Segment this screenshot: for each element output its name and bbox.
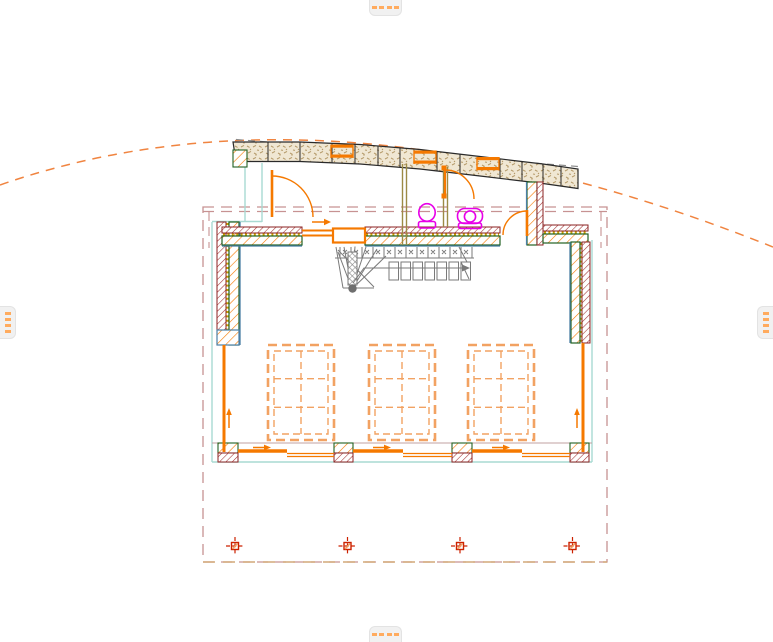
- handle-dash: [5, 324, 11, 328]
- drawing-canvas[interactable]: [0, 0, 773, 642]
- handle-dash: [379, 6, 384, 9]
- marquee-boundary: [203, 207, 607, 562]
- handle-dash: [387, 6, 392, 9]
- floor-opening-2: [369, 345, 435, 440]
- handle-dash: [372, 6, 377, 9]
- application-viewport: [0, 0, 773, 642]
- grid-marker-1: [226, 537, 244, 555]
- handle-dash: [379, 633, 384, 636]
- grid-marker-4: [564, 537, 582, 555]
- scroll-handle-right[interactable]: [757, 306, 773, 339]
- window-direction-arrows: [226, 408, 580, 450]
- handle-dash: [763, 318, 769, 322]
- staircase: [335, 247, 474, 293]
- floor-opening-1: [268, 345, 334, 440]
- scroll-handle-top[interactable]: [369, 0, 402, 16]
- handle-dash: [763, 312, 769, 316]
- handle-dash: [5, 312, 11, 316]
- interior-walls: [222, 164, 500, 246]
- floor-openings: [268, 345, 534, 440]
- handle-dash: [394, 633, 399, 636]
- handle-dash: [763, 324, 769, 328]
- grid-marker-2: [339, 537, 357, 555]
- handle-dash: [5, 318, 11, 322]
- grid-markers: [226, 537, 582, 555]
- handle-dash: [5, 330, 11, 334]
- grid-marker-3: [451, 537, 469, 555]
- floor-opening-3: [468, 345, 534, 440]
- handle-dash: [372, 633, 377, 636]
- handle-dash: [387, 633, 392, 636]
- roof-band: [233, 142, 578, 189]
- scroll-handle-left[interactable]: [0, 306, 16, 339]
- handle-dash: [763, 330, 769, 334]
- scroll-handle-bottom[interactable]: [369, 626, 402, 642]
- handle-dash: [394, 6, 399, 9]
